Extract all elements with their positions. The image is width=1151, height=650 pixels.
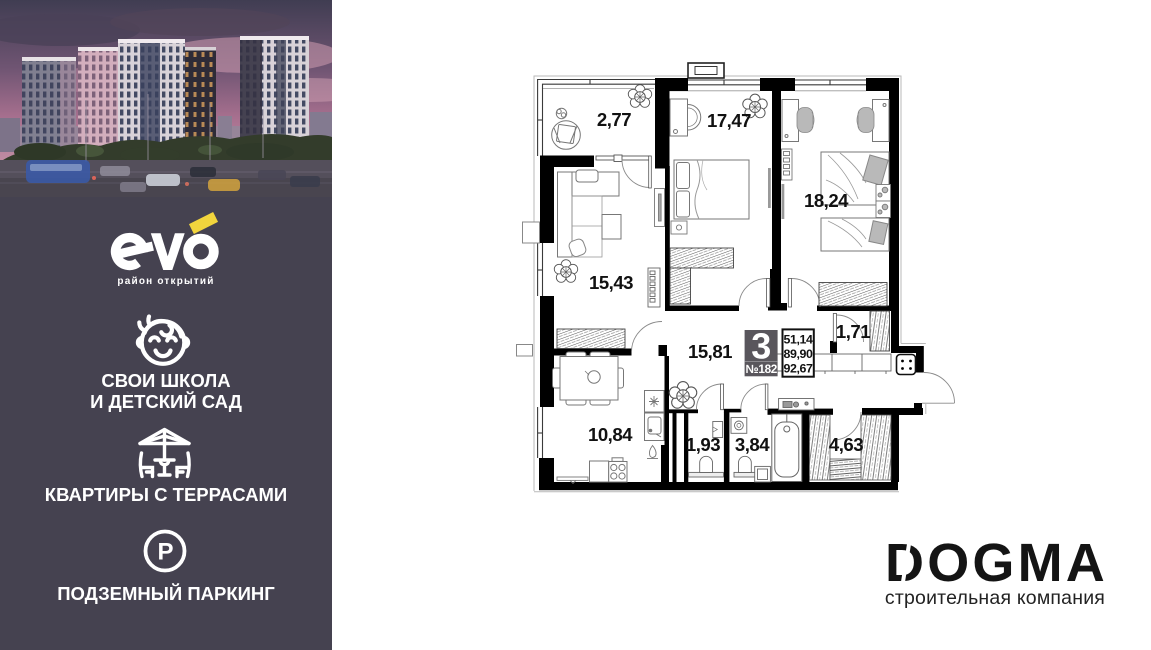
svg-text:3,84: 3,84 xyxy=(735,434,770,455)
svg-text:89,90: 89,90 xyxy=(783,347,813,361)
svg-text:15,81: 15,81 xyxy=(688,341,732,362)
svg-text:№182: №182 xyxy=(746,362,778,376)
svg-text:3: 3 xyxy=(751,326,771,367)
svg-text:4,63: 4,63 xyxy=(829,434,863,455)
svg-text:1,71: 1,71 xyxy=(836,321,870,342)
svg-text:1,93: 1,93 xyxy=(686,434,720,455)
svg-text:15,43: 15,43 xyxy=(589,272,633,293)
svg-text:51,14: 51,14 xyxy=(783,332,813,346)
svg-text:2,77: 2,77 xyxy=(597,109,631,130)
svg-text:18,24: 18,24 xyxy=(804,190,849,211)
svg-text:10,84: 10,84 xyxy=(588,424,633,445)
svg-text:17,47: 17,47 xyxy=(707,110,751,131)
svg-text:P: P xyxy=(157,539,173,566)
svg-text:92,67: 92,67 xyxy=(783,362,813,376)
